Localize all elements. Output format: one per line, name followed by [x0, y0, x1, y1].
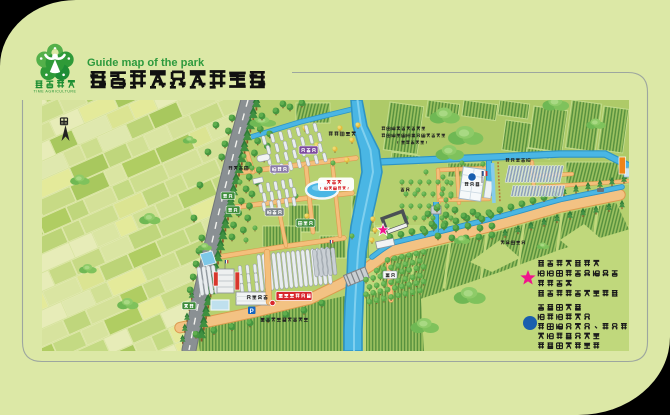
- svg-text:P: P: [250, 308, 254, 315]
- svg-text:TIME AGRICULTURE: TIME AGRICULTURE: [34, 90, 77, 94]
- svg-text:Guide map of the park: Guide map of the park: [87, 57, 205, 69]
